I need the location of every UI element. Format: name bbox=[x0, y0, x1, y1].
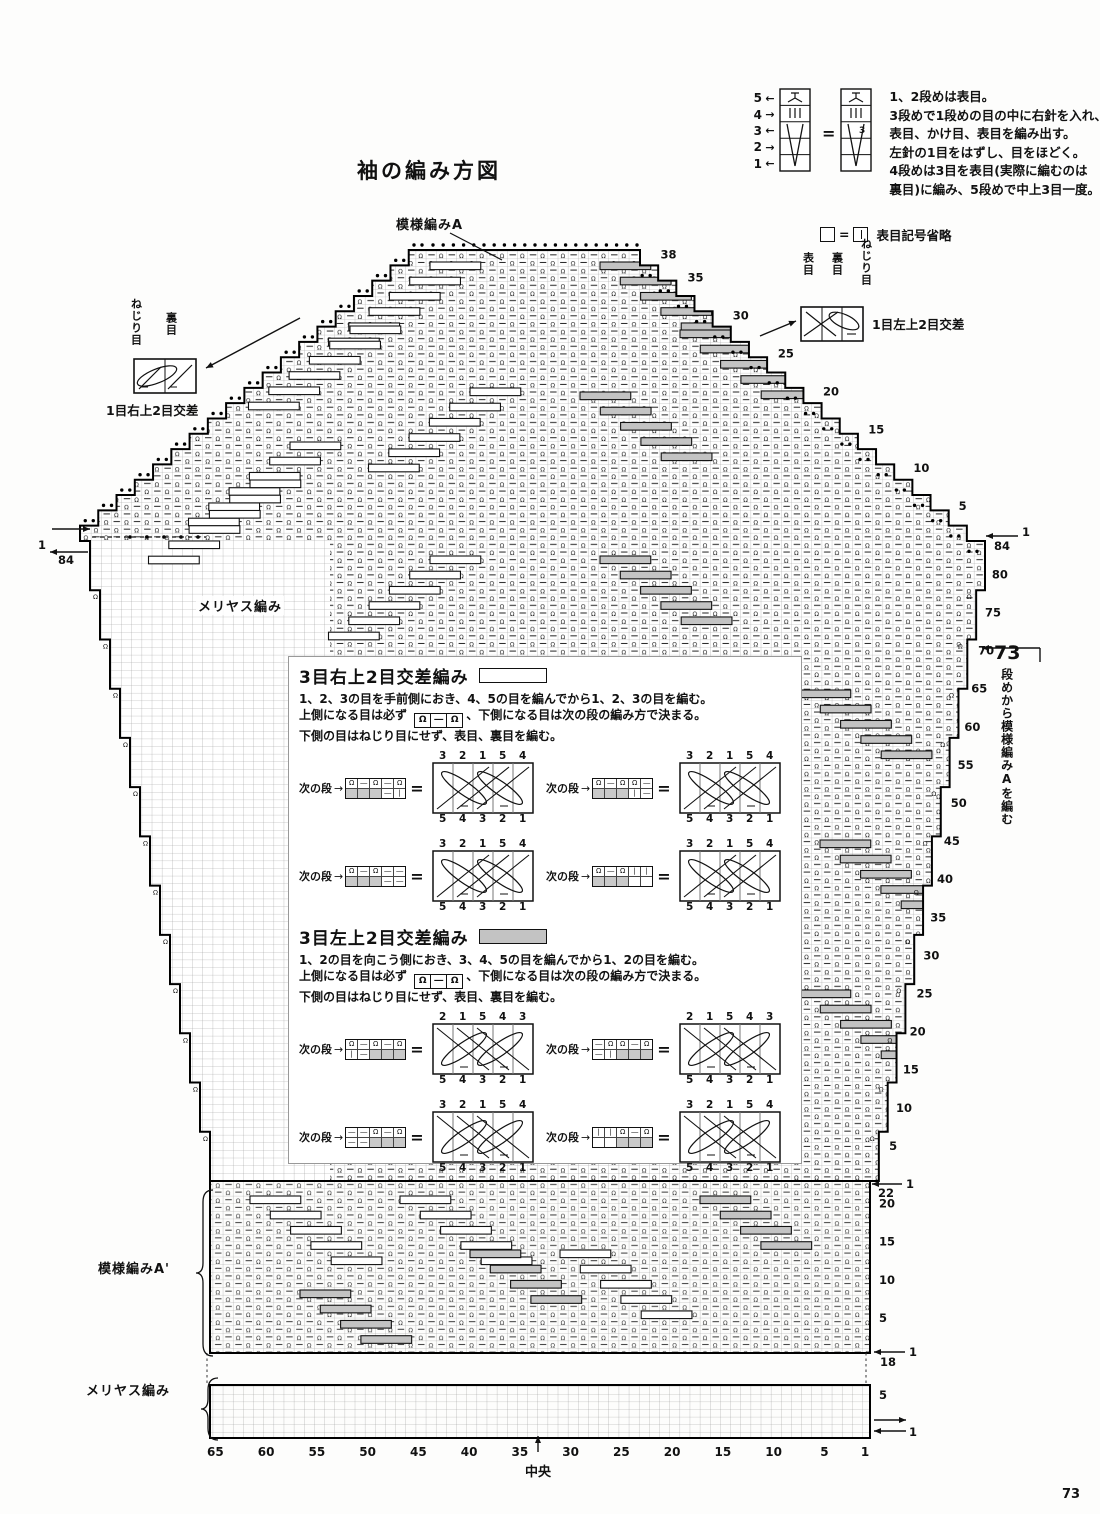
chart-number-label: 65 bbox=[971, 682, 987, 696]
svg-text:Ω: Ω bbox=[193, 1086, 198, 1094]
chart-number-label: 1 bbox=[38, 538, 46, 552]
arrow-right-icon: → bbox=[334, 870, 343, 883]
svg-text:Ω: Ω bbox=[967, 593, 972, 601]
empty-cell-icon bbox=[820, 227, 835, 242]
svg-text:Ω: Ω bbox=[143, 839, 148, 847]
stitch-order-numbers: 32154 bbox=[433, 1100, 533, 1111]
chart-number-label: 38 bbox=[660, 247, 676, 261]
direction-arrow-icon: ← bbox=[762, 92, 778, 105]
chart-number-label: 10 bbox=[765, 1445, 782, 1459]
left-legend-twist-label: ねじり目 bbox=[130, 298, 142, 362]
next-row-label: 次の段 bbox=[299, 1129, 332, 1145]
svg-text:Ω: Ω bbox=[870, 1135, 875, 1143]
stitch-legend: 5←4→3←2→1← = 3 1、2段めは表目。 3段めで1段めの目の中に右針を… bbox=[752, 88, 1100, 199]
chart-number-label: 40 bbox=[461, 1445, 478, 1459]
chart-number-label: 45 bbox=[944, 834, 960, 848]
left-legend-purl-label: 裏目 bbox=[165, 312, 177, 352]
equals-sign: = bbox=[410, 867, 423, 886]
legend-row: 4→ bbox=[752, 106, 778, 122]
next-row-symbol-strip: Ω―Ω|| bbox=[592, 866, 653, 887]
chart-number-label: 1 bbox=[909, 1425, 917, 1439]
chart-number-label: 5 bbox=[889, 1139, 897, 1153]
chart-number-label: 35 bbox=[512, 1445, 529, 1459]
next-row-label: 次の段 bbox=[299, 1041, 332, 1057]
next-row-symbol-strip: ―ΩΩ―Ω―| bbox=[592, 1039, 653, 1060]
cable-cross-diagram-icon bbox=[432, 850, 534, 902]
chart-number-label: 1 bbox=[861, 1445, 869, 1459]
stitch-order-numbers: 32154 bbox=[433, 751, 533, 762]
chart-number-label: 15 bbox=[868, 423, 884, 437]
next-row-example: 次の段→Ω―ΩΩ―|―=3215454321 bbox=[546, 744, 793, 832]
next-row-symbol-strip: Ω―Ω―Ω|― bbox=[345, 1039, 406, 1060]
svg-text:Ω: Ω bbox=[914, 889, 919, 897]
legend-row: 1← bbox=[752, 156, 778, 172]
chart-number-label: 60 bbox=[258, 1445, 275, 1459]
svg-text:Ω: Ω bbox=[923, 839, 928, 847]
chart-number-label: 20 bbox=[879, 1197, 895, 1211]
chart-number-label: 20 bbox=[823, 385, 839, 399]
chart-number-label: 15 bbox=[903, 1063, 919, 1077]
svg-text:Ω: Ω bbox=[940, 741, 945, 749]
svg-text:Ω: Ω bbox=[183, 1036, 188, 1044]
chart-number-label: 40 bbox=[937, 872, 953, 886]
next-row-label: 次の段 bbox=[546, 1129, 579, 1145]
svg-text:Ω: Ω bbox=[958, 642, 963, 650]
cable-swatch-icon bbox=[479, 929, 547, 944]
next-row-example: 次の段→Ω―Ω||=3215454321 bbox=[546, 832, 793, 920]
cable-cross-diagram-icon bbox=[679, 850, 781, 902]
chart-number-label: 10 bbox=[879, 1273, 895, 1287]
stitch-order-numbers: 21543 bbox=[433, 1012, 533, 1023]
svg-text:Ω: Ω bbox=[103, 642, 108, 650]
svg-text:Ω: Ω bbox=[949, 692, 954, 700]
direction-arrow-icon: ← bbox=[762, 157, 778, 170]
svg-text:Ω: Ω bbox=[133, 790, 138, 798]
stitch-order-numbers: 54321 bbox=[433, 1163, 533, 1174]
chart-number-label: 10 bbox=[913, 461, 929, 475]
equals-sign: = bbox=[657, 779, 670, 798]
chart-number-label: 75 bbox=[985, 606, 1001, 620]
legend-row: 2→ bbox=[752, 139, 778, 155]
stitch-order-numbers: 32154 bbox=[433, 839, 533, 850]
inline-symbol-box: Ω―Ω bbox=[414, 974, 463, 989]
legend-row-number: 5 bbox=[752, 91, 762, 105]
right-legend-twist-label: ねじり目 bbox=[860, 238, 872, 298]
section-text: 下側の目はねじり目にせず、表目、裏目を編む。 bbox=[299, 989, 793, 1005]
next-row-example: 次の段→Ω―Ω―Ω|―=2154354321 bbox=[299, 1005, 546, 1093]
legend-row-numbers: 5←4→3←2→1← bbox=[752, 90, 778, 172]
stitch-order-numbers: 54321 bbox=[433, 902, 533, 913]
svg-text:Ω: Ω bbox=[93, 593, 98, 601]
next-row-symbol-strip: ||Ω―Ω bbox=[592, 1127, 653, 1148]
legend-row-number: 2 bbox=[752, 140, 762, 154]
note-73-number: 73 bbox=[994, 642, 1020, 664]
pattern-a-label: 模様編みA bbox=[394, 214, 465, 233]
stitch-order-numbers: 32154 bbox=[680, 839, 780, 850]
cable-section-title: 3目左上2目交差編み bbox=[299, 924, 469, 949]
right-cable-caption: 1目左上2目交差 bbox=[872, 314, 964, 333]
arrow-right-icon: → bbox=[581, 870, 590, 883]
svg-text:Ω: Ω bbox=[113, 692, 118, 700]
equals-sign: = bbox=[657, 1128, 670, 1147]
legend-row: 3← bbox=[752, 123, 778, 139]
chart-number-label: 70 bbox=[978, 644, 994, 658]
stitch-order-numbers: 54321 bbox=[433, 814, 533, 825]
chart-number-label: 5 bbox=[820, 1445, 828, 1459]
arrow-icon bbox=[52, 526, 90, 532]
next-row-label: 次の段 bbox=[546, 1041, 579, 1057]
equals-sign: = bbox=[410, 1128, 423, 1147]
svg-text:Ω: Ω bbox=[153, 889, 158, 897]
legend-row-number: 3 bbox=[752, 124, 762, 138]
next-row-label: 次の段 bbox=[546, 868, 579, 884]
arrow-right-icon: → bbox=[334, 1043, 343, 1056]
arrow-right-icon: → bbox=[581, 782, 590, 795]
stitch-order-numbers: 54321 bbox=[433, 1075, 533, 1086]
equals-sign: = bbox=[410, 779, 423, 798]
arrow-right-icon: → bbox=[581, 1131, 590, 1144]
chart-number-label: 84 bbox=[994, 539, 1010, 553]
stitch-order-numbers: 32154 bbox=[680, 1100, 780, 1111]
legend-note: 1、2段めは表目。 3段めで1段めの目の中に右針を入れ、 表目、かけ目、表目を編… bbox=[889, 88, 1100, 199]
cable-explanation-box: 3目右上2目交差編み1、2、3の目を手前側におき、4、5の目を編んでから1、2、… bbox=[288, 656, 802, 1164]
omit-note-text: 表目記号省略 bbox=[876, 225, 951, 244]
svg-text:Ω: Ω bbox=[931, 790, 936, 798]
chart-number-label: 15 bbox=[715, 1445, 732, 1459]
chart-number-label: 25 bbox=[917, 987, 933, 1001]
arrow-icon bbox=[874, 1417, 906, 1423]
pattern-a2-label: 模様編みA' bbox=[96, 1258, 172, 1277]
chart-number-label: 5 bbox=[879, 1388, 887, 1402]
stitch-symbol-column-alt-icon: 3 bbox=[839, 88, 879, 172]
chart-number-label: 25 bbox=[613, 1445, 630, 1459]
note-73-text: 段めから模様編みAを編む bbox=[1000, 668, 1013, 1018]
svg-text:Ω: Ω bbox=[879, 1086, 884, 1094]
svg-text:Ω: Ω bbox=[896, 987, 901, 995]
next-row-label: 次の段 bbox=[299, 780, 332, 796]
section-text: 上側になる目は必ず Ω―Ω、下側になる目は次の段の編み方で決まる。 bbox=[299, 707, 793, 728]
chart-number-label: 60 bbox=[964, 720, 980, 734]
cable-section: 3目右上2目交差編み1、2、3の目を手前側におき、4、5の目を編んでから1、2、… bbox=[299, 663, 793, 920]
next-row-symbol-strip: Ω―ΩΩ―|― bbox=[592, 778, 653, 799]
next-row-label: 次の段 bbox=[299, 868, 332, 884]
chart-number-label: 30 bbox=[562, 1445, 579, 1459]
cable-cross-diagram-icon bbox=[679, 1023, 781, 1075]
chart-number-label: 30 bbox=[923, 948, 939, 962]
chart-number-label: 25 bbox=[778, 347, 794, 361]
chart-number-label: 80 bbox=[992, 567, 1008, 581]
right-legend-knit-label: 表目 bbox=[802, 252, 814, 292]
chart-number-label: 30 bbox=[733, 308, 749, 322]
direction-arrow-icon: ← bbox=[762, 124, 778, 137]
cable-section-title: 3目右上2目交差編み bbox=[299, 663, 469, 688]
chart-number-label: 中央 bbox=[525, 1464, 552, 1480]
next-row-symbol-strip: ――Ω―Ω―― bbox=[345, 1127, 406, 1148]
stitch-symbol-column-icon bbox=[778, 88, 818, 172]
arrow-icon bbox=[874, 1428, 906, 1434]
chart-number-label: 20 bbox=[664, 1445, 681, 1459]
next-row-example: 次の段→Ω―Ω―Ω―|=3215454321 bbox=[299, 744, 546, 832]
chart-number-label: 45 bbox=[410, 1445, 427, 1459]
direction-arrow-icon: → bbox=[762, 141, 778, 154]
cable-cross-diagram-icon bbox=[679, 762, 781, 814]
chart-number-label: 65 bbox=[207, 1445, 224, 1459]
left-cross-cable-icon bbox=[800, 304, 870, 346]
chart-number-label: 84 bbox=[58, 553, 74, 567]
knit-symbol-omission-note: = 表目記号省略 bbox=[820, 225, 952, 244]
chart-number-label: 10 bbox=[896, 1101, 912, 1115]
cable-cross-diagram-icon bbox=[679, 1111, 781, 1163]
svg-text:Ω: Ω bbox=[887, 1036, 892, 1044]
cable-cross-diagram-icon bbox=[432, 1023, 534, 1075]
inline-symbol-box: Ω―Ω bbox=[414, 713, 463, 728]
stockinette-label: メリヤス編み bbox=[196, 596, 284, 615]
left-cable-caption: 1目右上2目交差 bbox=[106, 400, 198, 419]
svg-text:3: 3 bbox=[859, 126, 865, 136]
stitch-order-numbers: 54321 bbox=[680, 1075, 780, 1086]
page-number: 73 bbox=[1062, 1487, 1080, 1502]
arrow-right-icon: → bbox=[581, 1043, 590, 1056]
lower-bands bbox=[207, 1181, 870, 1438]
arrow-icon bbox=[760, 321, 796, 336]
svg-text:Ω: Ω bbox=[123, 741, 128, 749]
cable-cross-diagram-icon bbox=[432, 762, 534, 814]
cable-swatch-icon bbox=[479, 668, 547, 683]
cable-section: 3目左上2目交差編み1、2の目を向こう側におき、3、4、5の目を編んでから1、2… bbox=[299, 924, 793, 1181]
chart-number-label: 20 bbox=[910, 1025, 926, 1039]
right-legend-purl-label: 裏目 bbox=[831, 252, 843, 292]
arrow-right-icon: → bbox=[334, 782, 343, 795]
chart-number-label: 1 bbox=[1022, 525, 1030, 539]
svg-text:Ω: Ω bbox=[163, 938, 168, 946]
legend-row-number: 1 bbox=[752, 157, 762, 171]
next-row-example: 次の段→―ΩΩ―Ω―|=2154354321 bbox=[546, 1005, 793, 1093]
cable-cross-diagram-icon bbox=[432, 1111, 534, 1163]
svg-text:Ω: Ω bbox=[203, 1135, 208, 1143]
direction-arrow-icon: → bbox=[762, 108, 778, 121]
section-text: 1、2、3の目を手前側におき、4、5の目を編んでから1、2、3の目を編む。 bbox=[299, 691, 793, 707]
equals-sign: = bbox=[657, 1040, 670, 1059]
svg-text:Ω: Ω bbox=[173, 987, 178, 995]
next-row-symbol-strip: Ω―Ω―Ω―| bbox=[345, 778, 406, 799]
chart-number-label: 55 bbox=[958, 758, 974, 772]
chart-number-label: 5 bbox=[959, 499, 967, 513]
legend-row-number: 4 bbox=[752, 108, 762, 122]
chart-number-label: 35 bbox=[930, 910, 946, 924]
next-row-example: 次の段→Ω―Ω――――=3215454321 bbox=[299, 832, 546, 920]
next-row-symbol-strip: Ω―Ω―――― bbox=[345, 866, 406, 887]
chart-number-label: 18 bbox=[880, 1355, 896, 1369]
section-text: 上側になる目は必ず Ω―Ω、下側になる目は次の段の編み方で決まる。 bbox=[299, 968, 793, 989]
equals-sign: = bbox=[410, 1040, 423, 1059]
chart-number-label: 15 bbox=[879, 1235, 895, 1249]
right-cross-cable-icon bbox=[133, 356, 203, 398]
section-text: 1、2の目を向こう側におき、3、4、5の目を編んでから1、2の目を編む。 bbox=[299, 952, 793, 968]
chart-number-label: 5 bbox=[879, 1311, 887, 1325]
chart-number-label: 55 bbox=[309, 1445, 326, 1459]
scanned-knitting-page: ΩΩΩΩΩΩΩΩΩΩΩΩΩΩΩΩΩΩΩΩΩΩΩΩΩΩ38353025201510… bbox=[0, 0, 1100, 1514]
arrow-right-icon: → bbox=[334, 1131, 343, 1144]
page-title: 袖の編み方図 bbox=[357, 155, 501, 185]
next-row-example: 次の段→――Ω―Ω――=3215454321 bbox=[299, 1093, 546, 1181]
stitch-order-numbers: 54321 bbox=[680, 902, 780, 913]
chart-number-label: 1 bbox=[906, 1177, 914, 1191]
chart-number-label: 1 bbox=[909, 1345, 917, 1359]
stockinette-label-bottom: メリヤス編み bbox=[84, 1380, 172, 1399]
stitch-order-numbers: 32154 bbox=[680, 751, 780, 762]
legend-row: 5← bbox=[752, 90, 778, 106]
stitch-order-numbers: 54321 bbox=[680, 1163, 780, 1174]
section-text: 下側の目はねじり目にせず、表目、裏目を編む。 bbox=[299, 728, 793, 744]
chart-number-label: 50 bbox=[359, 1445, 376, 1459]
next-row-label: 次の段 bbox=[546, 780, 579, 796]
equals-sign: = bbox=[822, 124, 835, 143]
stitch-order-numbers: 54321 bbox=[680, 814, 780, 825]
stitch-order-numbers: 21543 bbox=[680, 1012, 780, 1023]
equals-sign: = bbox=[657, 867, 670, 886]
svg-text:Ω: Ω bbox=[905, 938, 910, 946]
chart-number-label: 50 bbox=[951, 796, 967, 810]
chart-number-label: 35 bbox=[688, 270, 704, 284]
next-row-example: 次の段→||Ω―Ω=3215454321 bbox=[546, 1093, 793, 1181]
